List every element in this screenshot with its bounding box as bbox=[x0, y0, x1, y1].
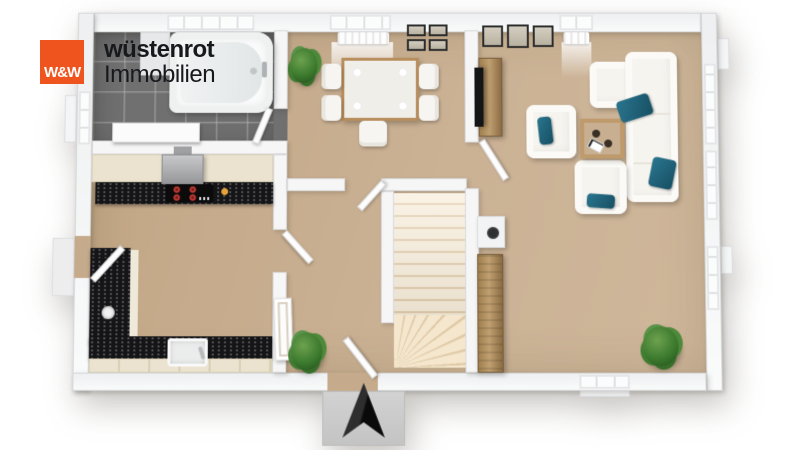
bathtub-faucet bbox=[262, 62, 267, 78]
picture-frame bbox=[533, 25, 554, 47]
staircase-straight-run bbox=[394, 193, 465, 317]
magazine bbox=[587, 138, 605, 154]
cup bbox=[604, 140, 612, 148]
living-window-bottom bbox=[579, 375, 630, 389]
picture-frame bbox=[507, 24, 529, 47]
picture-frame bbox=[429, 39, 448, 51]
dining-table bbox=[341, 58, 419, 121]
living-window-top bbox=[559, 15, 593, 31]
radiator bbox=[338, 32, 390, 44]
burner bbox=[189, 186, 196, 193]
cabinet-face bbox=[129, 250, 138, 342]
dining-hall-wall-b bbox=[381, 178, 467, 191]
sink-faucet bbox=[198, 346, 206, 360]
dining-chair bbox=[419, 95, 439, 121]
stair-wall bbox=[381, 191, 394, 323]
picture-grid bbox=[407, 24, 449, 51]
bathroom-wall-east bbox=[274, 30, 288, 109]
brand-logo: W&W bbox=[40, 40, 84, 84]
armchair-pillow bbox=[537, 116, 554, 145]
cooktop-controls bbox=[199, 197, 211, 200]
kitchen-sink bbox=[167, 338, 208, 366]
extractor-hood bbox=[161, 154, 203, 184]
burner bbox=[173, 194, 180, 201]
coffee-table bbox=[580, 119, 624, 159]
bathroom-vanity bbox=[112, 123, 200, 143]
brand-name: wüstenrot bbox=[104, 37, 215, 62]
fruit bbox=[221, 188, 228, 195]
potted-plant bbox=[290, 48, 318, 83]
place-setting bbox=[352, 101, 362, 111]
potted-plant bbox=[642, 326, 679, 366]
window-sill bbox=[720, 246, 732, 274]
dining-chair bbox=[359, 121, 387, 147]
place-setting bbox=[398, 68, 408, 78]
brand-wordmark: wüstenrot Immobilien bbox=[104, 37, 215, 87]
potted-plant bbox=[290, 332, 322, 370]
living-window-right-1 bbox=[704, 64, 717, 145]
dining-hall-wall-a bbox=[287, 178, 345, 191]
dining-chair bbox=[419, 64, 439, 90]
cup bbox=[592, 130, 600, 138]
chimney-block bbox=[477, 216, 505, 248]
burner bbox=[189, 194, 196, 201]
burner bbox=[173, 186, 180, 193]
bathroom-door-threshold bbox=[273, 109, 287, 141]
cooktop bbox=[165, 184, 213, 202]
living-window-right-2 bbox=[705, 150, 718, 220]
picture-frame bbox=[429, 24, 448, 36]
bathtub-drain bbox=[250, 68, 257, 75]
window-sill bbox=[64, 95, 77, 142]
place-setting bbox=[398, 101, 408, 111]
chimney-flue bbox=[487, 227, 499, 239]
kitchen-hall-wall-a bbox=[273, 154, 287, 230]
picture-frame bbox=[482, 25, 503, 47]
bathroom-window bbox=[167, 15, 254, 31]
logo-monogram: W&W bbox=[44, 64, 80, 81]
kitchen-window-left bbox=[78, 91, 91, 144]
window-sill bbox=[717, 38, 729, 69]
picture-frame bbox=[407, 24, 426, 36]
living-window-right-3 bbox=[706, 246, 719, 310]
armchair-pillow bbox=[586, 193, 615, 209]
side-door-threshold bbox=[74, 236, 91, 278]
tv-screen bbox=[474, 68, 483, 127]
picture-frame bbox=[407, 39, 426, 51]
radiator bbox=[563, 32, 589, 44]
side-porch bbox=[52, 238, 75, 296]
window-light bbox=[562, 42, 592, 77]
wardrobe bbox=[477, 254, 504, 373]
staircase-winder bbox=[394, 315, 466, 367]
picture-row bbox=[482, 24, 553, 47]
dining-chair bbox=[321, 64, 341, 90]
floorplan-screenshot: W&W wüstenrot Immobilien bbox=[0, 0, 800, 450]
dining-window bbox=[330, 15, 391, 31]
place-setting bbox=[352, 68, 362, 78]
dining-chair bbox=[321, 95, 341, 121]
brand-division: Immobilien bbox=[104, 62, 215, 87]
